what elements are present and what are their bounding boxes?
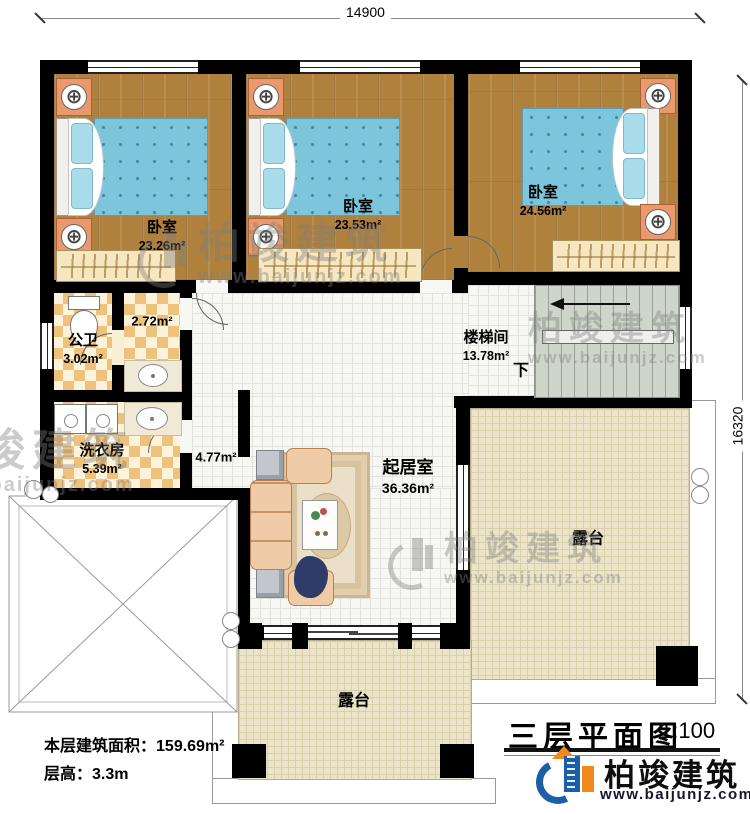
window — [40, 323, 54, 369]
room-name: 卧室 — [139, 218, 186, 238]
sofa — [250, 480, 292, 570]
logo-building-orange — [582, 766, 594, 792]
room-area: 3.02m² — [63, 351, 103, 367]
stair-direction-arrow-icon — [550, 298, 564, 310]
room-area: 23.26m² — [139, 238, 186, 254]
armchair — [286, 448, 332, 484]
wall — [238, 390, 250, 457]
nightstand: ⊕ — [248, 78, 284, 116]
room-name: 卧室 — [520, 183, 567, 203]
window — [264, 625, 292, 640]
room-area: 4.77m² — [195, 450, 236, 467]
wall — [238, 488, 250, 640]
window — [520, 60, 640, 74]
pillow — [70, 167, 94, 210]
lamp-icon: ⊕ — [253, 84, 279, 110]
washing-machine-icon — [86, 404, 118, 434]
coffee-table — [302, 500, 338, 550]
room-name: 露台 — [338, 692, 370, 713]
wall — [40, 488, 250, 500]
round-column — [42, 486, 59, 503]
sliding-door — [308, 625, 398, 640]
round-column — [222, 630, 240, 648]
pillow — [262, 122, 286, 165]
drawing-scale: 1:100 — [660, 718, 715, 744]
door-opening — [420, 280, 452, 293]
dimension-line-right — [742, 80, 743, 700]
company-logo-icon — [536, 752, 600, 808]
pillow — [70, 122, 94, 165]
corner-table — [256, 450, 284, 480]
wardrobe — [56, 250, 176, 282]
window — [300, 60, 420, 74]
toilet-icon — [68, 296, 100, 310]
floor-area-text: 本层建筑面积：159.69m² — [44, 732, 225, 756]
decor-dot — [311, 511, 320, 520]
column — [440, 623, 470, 649]
wardrobe — [258, 248, 422, 282]
floor-plan-canvas: ⊕ ⊕ ⊕ ⊕ ⊕ ⊕ 卧室 23.26m² 卧室 — [0, 0, 750, 814]
stair-down-label: 下 — [513, 362, 529, 383]
round-column — [691, 468, 709, 486]
floor-height-text: 层高：3.3m — [44, 760, 128, 784]
room-name: 起居室 — [382, 457, 434, 479]
bed-headboard — [646, 108, 660, 206]
nightstand: ⊕ — [640, 204, 676, 240]
corner-table — [256, 568, 284, 598]
laundry-label: 洗衣房 5.39m² — [79, 441, 124, 477]
bedroom2-label: 卧室 23.53m² — [335, 197, 382, 233]
floor-area-label: 本层建筑面积： — [44, 738, 156, 755]
living-label: 起居室 36.36m² — [382, 457, 434, 497]
room-name: 露台 — [572, 530, 604, 551]
wall — [456, 408, 470, 465]
room-area: 5.39m² — [79, 461, 124, 477]
decor-dot — [315, 531, 320, 536]
door-opening — [112, 330, 124, 365]
lamp-icon: ⊕ — [61, 84, 87, 110]
wall — [468, 272, 692, 285]
room-area: 36.36m² — [382, 479, 434, 497]
hall-label: 4.77m² — [195, 450, 236, 467]
door-opening — [454, 236, 468, 268]
pillow — [622, 112, 646, 155]
decor-dot — [323, 531, 328, 536]
door-opening — [196, 280, 228, 293]
bedroom3-label: 卧室 24.56m² — [520, 183, 567, 219]
lamp-icon: ⊕ — [645, 83, 671, 109]
sink-icon — [138, 364, 168, 387]
window — [456, 465, 470, 570]
dimension-top-value: 14900 — [340, 4, 391, 20]
room-name: 公卫 — [63, 331, 103, 351]
room-area: 2.72m² — [131, 314, 172, 331]
floor-area-value: 159.69m² — [156, 738, 225, 755]
column — [292, 623, 308, 649]
round-column — [691, 486, 709, 504]
decor-dot — [320, 508, 327, 515]
terrace-right-label: 露台 — [572, 530, 604, 551]
room-area: 13.78m² — [463, 348, 510, 364]
room-name: 洗衣房 — [79, 441, 124, 461]
round-column — [24, 480, 43, 499]
lamp-icon: ⊕ — [645, 209, 671, 235]
window — [88, 60, 198, 74]
pillow — [622, 157, 646, 200]
washing-machine-icon — [54, 404, 86, 434]
lamp-icon: ⊕ — [61, 224, 87, 250]
wardrobe — [552, 240, 680, 272]
bedroom1-label: 卧室 23.26m² — [139, 218, 186, 254]
room-name: 楼梯间 — [463, 328, 510, 348]
terrace-bottom-label: 露台 — [338, 692, 370, 713]
bathroom-label: 公卫 3.02m² — [63, 331, 103, 367]
window — [678, 307, 692, 369]
round-column — [222, 612, 240, 630]
floor-height-value: 3.3m — [92, 766, 128, 783]
window — [412, 625, 440, 640]
nightstand: ⊕ — [56, 78, 92, 116]
door-opening — [180, 298, 192, 330]
dimension-right-value: 16320 — [729, 401, 745, 452]
logo-building-blue — [564, 756, 580, 792]
vanity-label: 2.72m² — [131, 314, 172, 331]
bed — [94, 118, 208, 216]
stair-rail — [542, 330, 674, 344]
floor-height-label: 层高： — [44, 766, 92, 783]
column — [440, 744, 474, 778]
lower-roof — [8, 495, 238, 713]
corridor-floor — [192, 293, 468, 396]
column — [238, 623, 262, 649]
down-text: 下 — [513, 362, 529, 383]
column — [656, 646, 698, 686]
room-name: 卧室 — [335, 197, 382, 217]
lamp-icon: ⊕ — [253, 224, 279, 250]
pillow — [262, 167, 286, 210]
company-website-text: www.baijunjz.com — [600, 786, 750, 803]
room-area: 23.53m² — [335, 217, 382, 233]
stairwell-label: 楼梯间 13.78m² — [463, 328, 510, 364]
terrace-bottom-railing-bottom — [212, 778, 496, 804]
wall — [232, 74, 246, 280]
column — [232, 744, 266, 778]
room-area: 24.56m² — [520, 203, 567, 219]
column — [398, 623, 412, 649]
stair-direction-line — [564, 303, 630, 305]
sink-icon — [136, 407, 168, 430]
